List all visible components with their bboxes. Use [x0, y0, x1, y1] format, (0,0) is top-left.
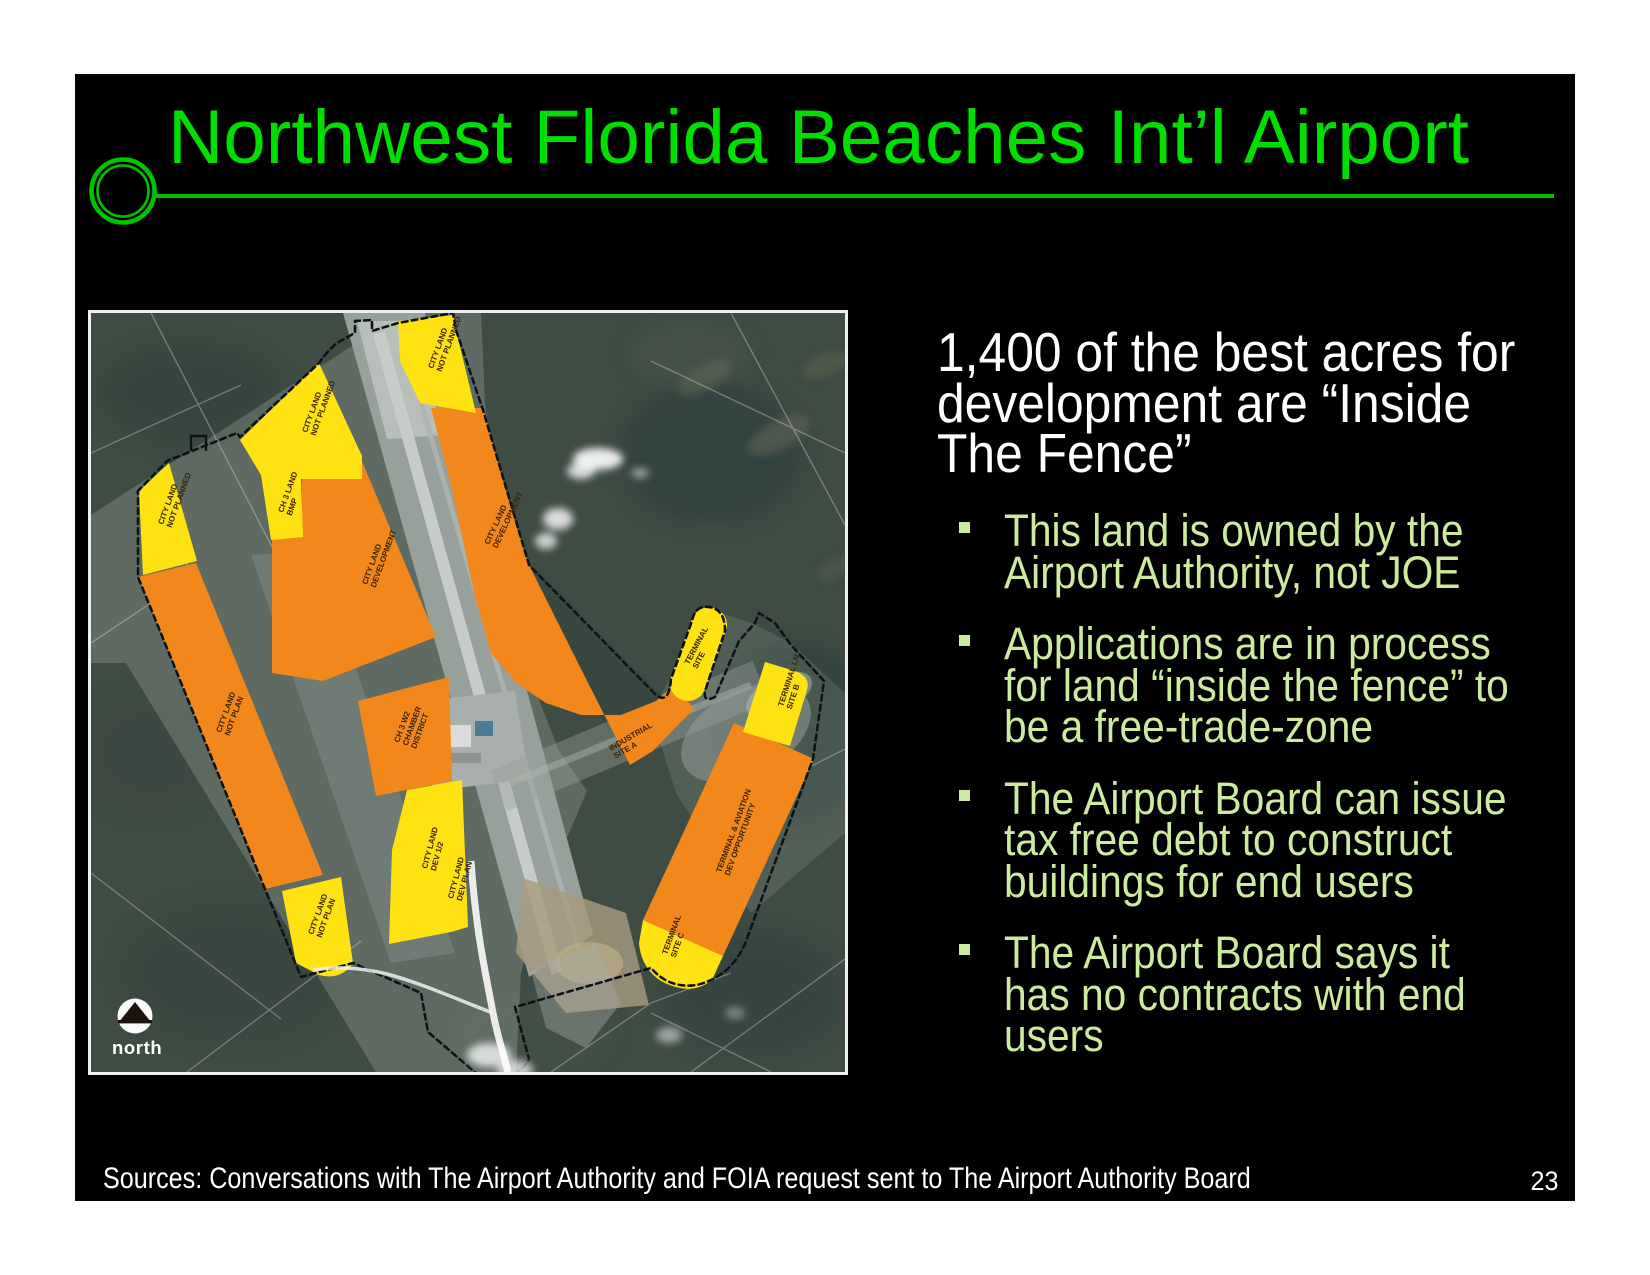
svg-text:north: north	[112, 1037, 162, 1058]
